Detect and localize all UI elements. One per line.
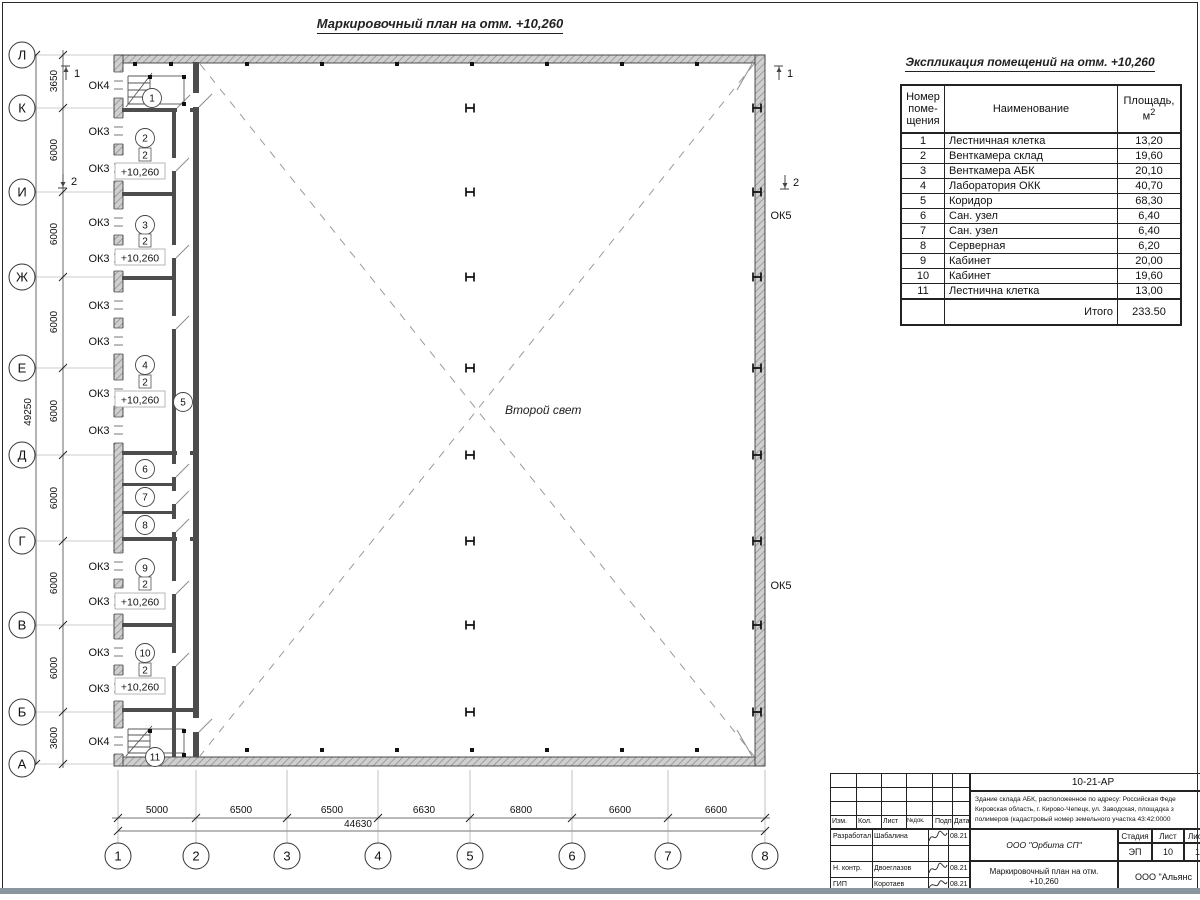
window-gap (114, 328, 124, 354)
schedule-cell: 20,10 (1118, 164, 1182, 179)
window-gap (114, 728, 124, 754)
schedule-cell: 19,60 (1118, 269, 1182, 284)
schedule-total-row: Итого 233.50 (901, 299, 1181, 325)
schedule-cell: Кабинет (945, 269, 1118, 284)
schedule-cell: Сан. узел (945, 209, 1118, 224)
stamp-stage-label: Стадия (1118, 829, 1152, 843)
room-number-label: 1 (149, 94, 155, 105)
stamp-role: ГИП (833, 881, 871, 888)
schedule-cell: Коридор (945, 194, 1118, 209)
schedule-row: 9Кабинет20,00 (901, 254, 1181, 269)
schedule-row: 8Серверная6,20 (901, 239, 1181, 254)
finish-mark-label: 2 (142, 237, 148, 248)
col-axis-label: 7 (664, 849, 671, 864)
schedule-cell: Сан. узел (945, 224, 1118, 239)
schedule-cell: 11 (901, 284, 945, 300)
room-number-label: 7 (142, 493, 148, 504)
row-dim-label: 6000 (49, 571, 60, 594)
window-mark-label: ОК5 (770, 210, 791, 222)
schedule-cell: 9 (901, 254, 945, 269)
window-mark-label: ОК3 (88, 217, 109, 229)
steel-column-icon (466, 537, 474, 546)
window-mark-label: ОК3 (88, 596, 109, 608)
row-axis-label: Г (18, 534, 25, 549)
schedule-cell: 6,40 (1118, 224, 1182, 239)
post-square (182, 729, 186, 733)
row-axis-label: А (18, 757, 27, 772)
room-number-label: 9 (142, 564, 148, 575)
stamp-sheets-label: Листов (1184, 829, 1200, 843)
stamp-hdr-list: Лист (883, 818, 898, 825)
window-mark-label: ОК4 (88, 736, 109, 748)
wall-squares (133, 62, 699, 757)
post-square (545, 62, 549, 66)
schedule-total-label: Итого (945, 299, 1118, 325)
section-number: 1 (74, 68, 80, 80)
schedule-cell: 5 (901, 194, 945, 209)
section-number: 1 (787, 68, 793, 80)
schedule-cell: 6 (901, 209, 945, 224)
second-light-label: Второй свет (505, 403, 581, 417)
stamp-role: Н. контр. (833, 865, 871, 872)
sheet-title-line-2: +10,260 (1029, 877, 1058, 887)
window-mark-label: ОК3 (88, 561, 109, 573)
schedule-cell: Лестничная клетка (945, 133, 1118, 149)
col-dim-label: 6800 (510, 805, 533, 816)
elevation-label: +10,260 (121, 597, 159, 609)
steel-column-icon (466, 451, 474, 460)
post-square (133, 62, 137, 66)
stamp-address: Здание склада АБК, расположенное по адре… (970, 791, 1200, 829)
section-number: 2 (793, 177, 799, 189)
schedule-cell: Лаборатория ОКК (945, 179, 1118, 194)
window-gap (114, 118, 124, 144)
schedule-row: 10Кабинет19,60 (901, 269, 1181, 284)
signature-1 (927, 829, 949, 845)
row-dim-label: 6000 (49, 399, 60, 422)
steel-column-icon (466, 104, 474, 113)
stamp-date: 08.21 (950, 865, 970, 872)
dim-labels: 3650600060006000600060006000600036005000… (23, 69, 728, 830)
stamp-person-name: Коротаев (874, 881, 928, 888)
address-line-3: полимеров (кадастровый номер земельного … (975, 815, 1176, 825)
window-gap (114, 72, 124, 98)
finish-mark-label: 2 (142, 378, 148, 389)
row-dim-label: 6000 (49, 222, 60, 245)
col-axis-label: 5 (466, 849, 473, 864)
sheet-bottom-edge (0, 888, 1200, 894)
col-axis-label: 4 (374, 849, 381, 864)
room-number-label: 4 (142, 361, 148, 372)
row-axis-label: Ж (16, 270, 28, 285)
schedule-cell: Венткамера склад (945, 149, 1118, 164)
col-header-name: Наименование (945, 85, 1118, 133)
room-number-label: 10 (139, 649, 151, 660)
window-mark-label: ОК3 (88, 388, 109, 400)
window-mark-label: ОК3 (88, 336, 109, 348)
post-square (320, 62, 324, 66)
steel-column-icon (466, 708, 474, 717)
door-leaves (176, 64, 752, 756)
schedule-cell: 3 (901, 164, 945, 179)
row-dim-label: 6000 (49, 310, 60, 333)
schedule-cell: Лестнична клетка (945, 284, 1118, 300)
post-square (182, 753, 186, 757)
col-axis-label: 8 (761, 849, 768, 864)
elevation-label: +10,260 (121, 682, 159, 694)
stamp-hdr-ndok: №док. (907, 818, 925, 824)
schedule-row: 7Сан. узел6,40 (901, 224, 1181, 239)
schedule-total-value: 233.50 (1118, 299, 1182, 325)
elevation-label: +10,260 (121, 167, 159, 179)
row-axis-label: И (17, 185, 26, 200)
steel-column-icon (466, 621, 474, 630)
schedule-cell: Кабинет (945, 254, 1118, 269)
schedule-cell: 19,60 (1118, 149, 1182, 164)
stamp-sheets-value: 1 (1184, 843, 1200, 861)
schedule-cell: 4 (901, 179, 945, 194)
address-line-1: Здание склада АБК, расположенное по адре… (975, 795, 1176, 805)
col-header-number: Номерпоме-щения (901, 85, 945, 133)
post-square (620, 748, 624, 752)
window-mark-label: ОК3 (88, 126, 109, 138)
stamp-org: ООО "Орбита СП" (970, 829, 1118, 861)
post-square (545, 748, 549, 752)
post-square (470, 62, 474, 66)
exterior-walls (114, 55, 765, 766)
section-arrow (61, 182, 66, 187)
schedule-cell: 68,30 (1118, 194, 1182, 209)
window-mark-label: ОК3 (88, 253, 109, 265)
row-dim-label: 6000 (49, 138, 60, 161)
room-schedule-table: Номерпоме-щения Наименование Площадь,м2 … (900, 84, 1182, 326)
total-row-dim-label: 49250 (23, 398, 34, 426)
row-axis-label: Л (18, 48, 27, 63)
room-marks: 123456789101122222+10,260+10,260+10,260+… (115, 89, 193, 767)
stamp-date: 08.21 (950, 833, 970, 840)
window-mark-label: ОК3 (88, 425, 109, 437)
sheet-title-line-1: Маркировочный план на отм. (990, 867, 1099, 877)
section-marks: 1212 (58, 66, 799, 189)
window-mark-label: ОК5 (770, 580, 791, 592)
room-schedule-title: Экспликация помещений на отм. +10,260 (880, 55, 1180, 69)
room-number-label: 3 (142, 221, 148, 232)
window-gap (114, 417, 124, 443)
window-mark-label: ОК3 (88, 683, 109, 695)
stamp-role: Разработал (833, 833, 871, 840)
section-arrow (777, 67, 782, 72)
room-number-label: 2 (142, 134, 148, 145)
schedule-cell: Серверная (945, 239, 1118, 254)
schedule-cell: 13,00 (1118, 284, 1182, 300)
row-dim-label: 6000 (49, 486, 60, 509)
drawing-sheet: { "sheet": { "title": "Маркировочный пла… (0, 0, 1200, 900)
elevation-label: +10,260 (121, 253, 159, 265)
post-square (395, 748, 399, 752)
stamp-doc-number: 10-21-АР (970, 773, 1200, 791)
row-dim-label: 3650 (49, 69, 60, 92)
stamp-hdr-data: Дата (954, 818, 970, 825)
row-axis-label: В (18, 618, 27, 633)
section-arrow (64, 67, 69, 72)
drawing-title: Маркировочный план на отм. +10,260 (270, 16, 610, 31)
window-gap (114, 639, 124, 665)
schedule-cell: 13,20 (1118, 133, 1182, 149)
schedule-row: 4Лаборатория ОКК40,70 (901, 179, 1181, 194)
post-square (169, 62, 173, 66)
total-col-dim-label: 44630 (344, 819, 372, 830)
post-square (182, 102, 186, 106)
address-line-2: Кировская область, г. Кирово-Чепецк, ул.… (975, 805, 1176, 815)
stamp-sheet-value: 10 (1152, 843, 1184, 861)
signature-2 (927, 861, 949, 877)
schedule-cell: Венткамера АБК (945, 164, 1118, 179)
schedule-cell: 40,70 (1118, 179, 1182, 194)
stamp-sheet-label: Лист (1152, 829, 1184, 843)
schedule-row: 3Венткамера АБК20,10 (901, 164, 1181, 179)
schedule-row: 6Сан. узел6,40 (901, 209, 1181, 224)
row-axis-label: Е (18, 361, 27, 376)
schedule-row: 2Венткамера склад19,60 (901, 149, 1181, 164)
schedule-cell: 8 (901, 239, 945, 254)
row-axis-label: Б (18, 705, 27, 720)
finish-mark-label: 2 (142, 580, 148, 591)
schedule-cell: 6,20 (1118, 239, 1182, 254)
stamp-hdr-kol: Кол. (858, 818, 872, 825)
schedule-row: 1Лестничная клетка13,20 (901, 133, 1181, 149)
row-axis-label: К (18, 101, 26, 116)
col-axis-label: 6 (568, 849, 575, 864)
schedule-cell: 7 (901, 224, 945, 239)
col-axis-label: 2 (192, 849, 199, 864)
stamp-person-name: Шабалина (874, 833, 928, 840)
post-square (148, 75, 152, 79)
window-gap (114, 553, 124, 579)
elevation-label: +10,260 (121, 395, 159, 407)
col-header-area: Площадь,м2 (1118, 85, 1182, 133)
room-number-label: 11 (150, 753, 161, 764)
col-axis-label: 1 (114, 849, 121, 864)
schedule-cell: 10 (901, 269, 945, 284)
steel-column-icon (466, 364, 474, 373)
post-square (182, 75, 186, 79)
row-axis-label: Д (18, 448, 27, 463)
col-axis-label: 3 (283, 849, 290, 864)
post-square (620, 62, 624, 66)
col-dim-label: 5000 (146, 805, 169, 816)
post-square (148, 729, 152, 733)
window-mark-label: ОК3 (88, 300, 109, 312)
section-number: 2 (71, 176, 77, 188)
second-light-cross (200, 64, 754, 756)
post-square (245, 748, 249, 752)
steel-column-icon (466, 188, 474, 197)
schedule-cell: 20,00 (1118, 254, 1182, 269)
stamp-date: 08.21 (950, 881, 970, 888)
post-square (395, 62, 399, 66)
stamp-person-name: Двоеглазов (874, 865, 928, 872)
post-square (695, 748, 699, 752)
window-gap (114, 209, 124, 235)
col-dim-label: 6600 (705, 805, 728, 816)
stamp-hdr-podp: Подп. (935, 818, 954, 825)
window-gap (114, 292, 124, 318)
stamp-hdr-izm: Изм. (832, 818, 847, 825)
post-square (695, 62, 699, 66)
window-mark-label: ОК3 (88, 647, 109, 659)
schedule-row: 11Лестнична клетка13,00 (901, 284, 1181, 300)
schedule-total-spacer (901, 299, 945, 325)
stamp-stage-value: ЭП (1118, 843, 1152, 861)
window-mark-label: ОК3 (88, 163, 109, 175)
post-square (245, 62, 249, 66)
room-number-label: 5 (180, 398, 186, 409)
schedule-cell: 6,40 (1118, 209, 1182, 224)
post-square (320, 748, 324, 752)
schedule-row: 5Коридор68,30 (901, 194, 1181, 209)
room-number-label: 6 (142, 465, 148, 476)
schedule-cell: 2 (901, 149, 945, 164)
finish-mark-label: 2 (142, 151, 148, 162)
window-mark-label: ОК4 (88, 80, 109, 92)
col-dim-label: 6600 (609, 805, 632, 816)
section-arrow (783, 183, 788, 188)
post-square (470, 748, 474, 752)
schedule-cell: 1 (901, 133, 945, 149)
steel-column-icon (466, 273, 474, 282)
col-dim-label: 6630 (413, 805, 436, 816)
room-number-label: 8 (142, 521, 148, 532)
row-dim-label: 3600 (49, 726, 60, 749)
room-schedule-body: 1Лестничная клетка13,202Венткамера склад… (901, 133, 1181, 325)
row-dim-label: 6000 (49, 656, 60, 679)
col-dim-label: 6500 (230, 805, 253, 816)
col-dim-label: 6500 (321, 805, 344, 816)
finish-mark-label: 2 (142, 666, 148, 677)
